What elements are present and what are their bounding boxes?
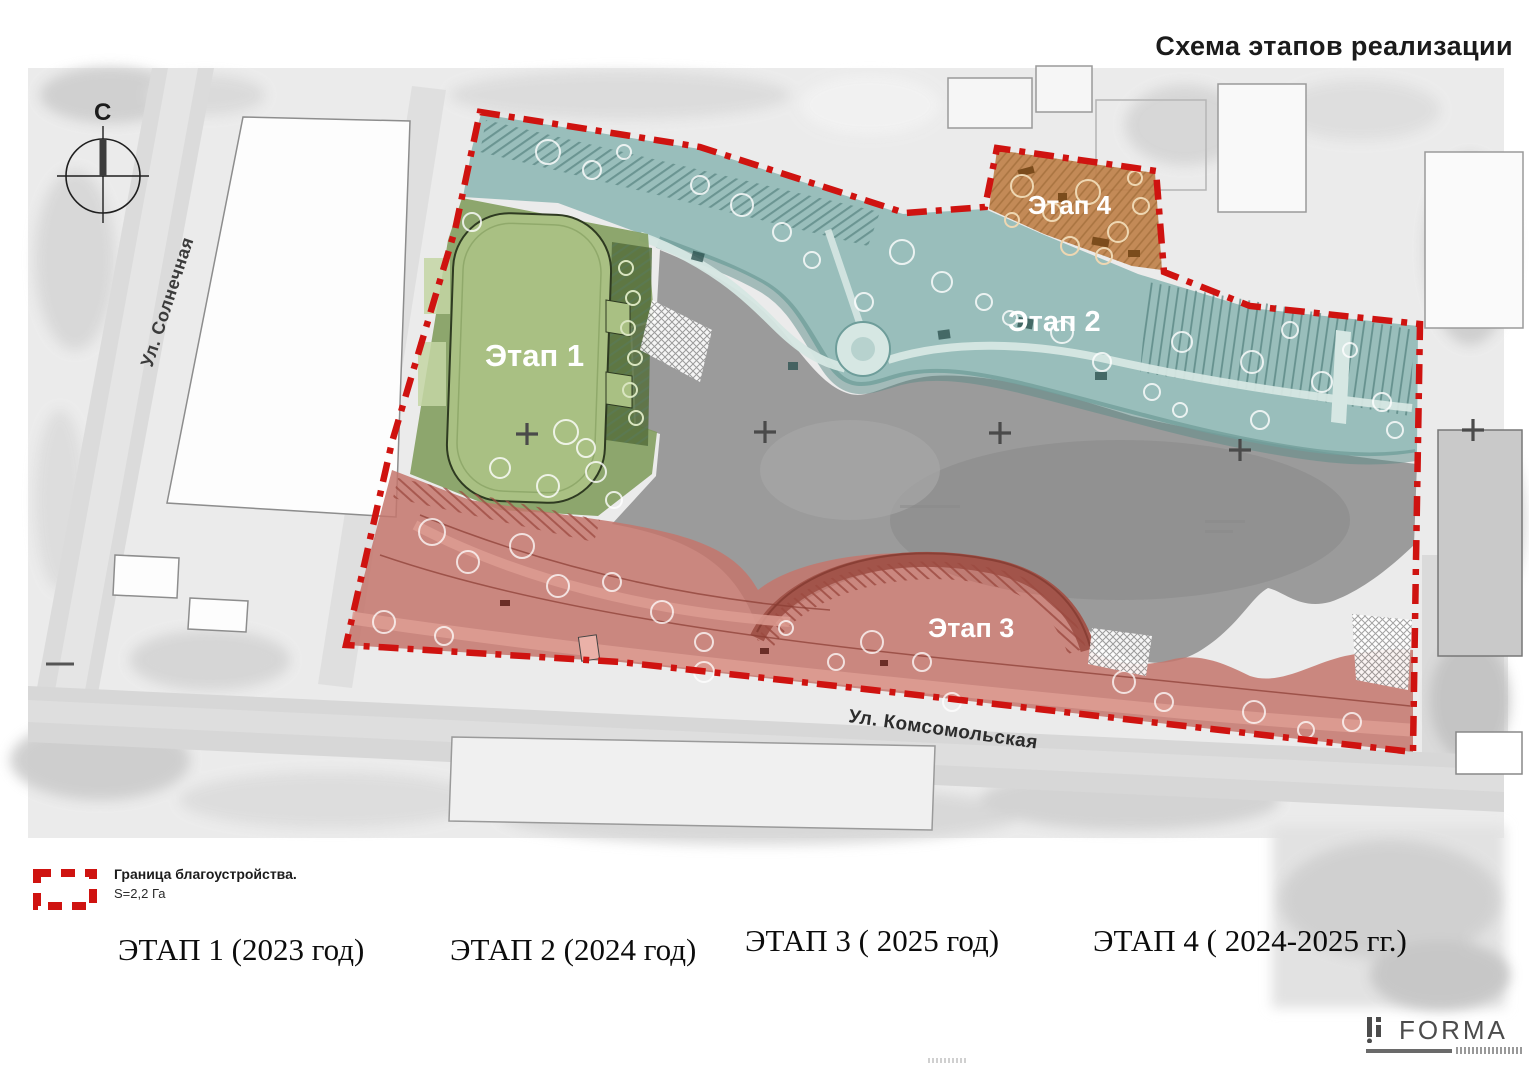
company-logo: FORMA [1366,1015,1522,1054]
zone-stage1-label: Этап 1 [485,338,584,373]
zone-stage4-label: Этап 4 [1028,190,1112,220]
stage1-caption: ЭТАП 1 (2023 год) [118,932,364,968]
building [1218,84,1306,212]
stage4-caption: ЭТАП 4 ( 2024-2025 гг.) [1093,923,1407,959]
logo-text: FORMA [1399,1017,1508,1043]
logo-rule [1366,1049,1452,1053]
building [1438,430,1522,656]
legend-area-label: S=2,2 Га [114,886,297,901]
building [188,598,248,632]
page-title: Схема этапов реализации [1155,31,1513,62]
building [1036,66,1092,112]
building [1456,732,1522,774]
legend: Граница благоустройства. S=2,2 Га [30,866,297,914]
building [948,78,1032,128]
slide-page: Этап 2 Этап 1 Этап 4 [0,0,1529,1080]
logo-mark-icon [1366,1015,1396,1043]
logo-tagline [1456,1047,1522,1054]
zone-stage2-label: Этап 2 [1008,306,1101,338]
zone-stage3-label: Этап 3 [928,613,1014,643]
building [1425,152,1523,328]
fine-print [928,1058,968,1063]
building [113,555,179,598]
site-plan-map: Этап 2 Этап 1 Этап 4 [0,0,1529,1080]
boundary-legend-swatch [30,866,100,914]
compass-north-label: С [94,99,111,126]
legend-boundary-label: Граница благоустройства. [114,866,297,882]
stage2-caption: ЭТАП 2 (2024 год) [450,932,696,968]
building [449,737,935,830]
stage3-caption: ЭТАП 3 ( 2025 год) [745,923,999,959]
